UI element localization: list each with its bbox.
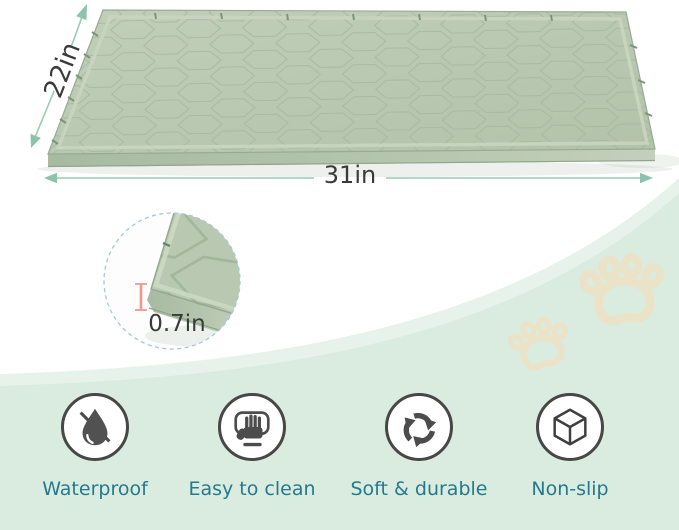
feature-icon-ring xyxy=(61,393,129,461)
easy-clean-icon xyxy=(229,404,275,450)
feature-soft-durable: Soft & durable xyxy=(344,393,494,500)
feature-icon-ring xyxy=(218,393,286,461)
feature-non-slip: Non-slip xyxy=(495,393,645,500)
feature-icon-ring xyxy=(385,393,453,461)
soft-durable-icon xyxy=(396,404,442,450)
feature-waterproof: Waterproof xyxy=(20,393,170,500)
features-row: Waterproof Easy to clean xyxy=(0,0,679,530)
feature-icon-ring xyxy=(536,393,604,461)
feature-label: Easy to clean xyxy=(188,478,315,500)
feature-easy-clean: Easy to clean xyxy=(177,393,327,500)
feature-label: Non-slip xyxy=(531,478,608,500)
feature-label: Soft & durable xyxy=(351,478,488,500)
non-slip-icon xyxy=(547,404,593,450)
waterproof-icon xyxy=(72,404,118,450)
feature-label: Waterproof xyxy=(42,478,148,500)
product-infographic: 22in 31in 0.7in Waterproof xyxy=(0,0,679,530)
